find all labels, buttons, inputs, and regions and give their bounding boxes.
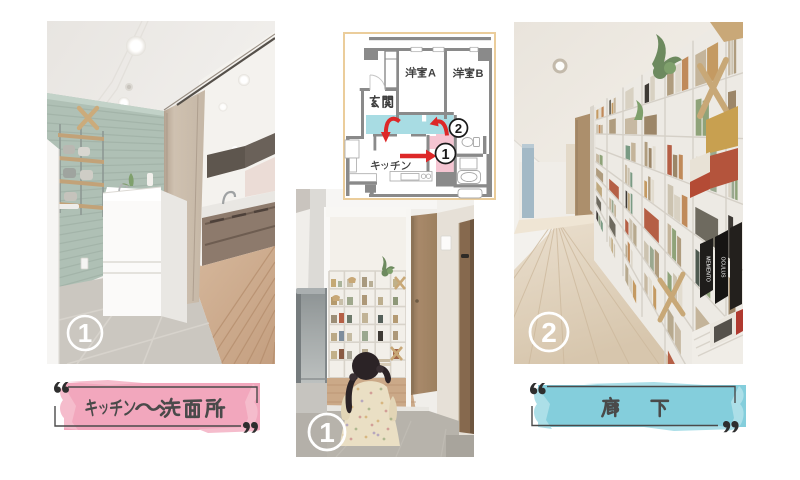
- svg-text:A: A: [428, 68, 436, 80]
- svg-text:1: 1: [441, 147, 449, 163]
- svg-text:2: 2: [455, 121, 462, 136]
- svg-text:2: 2: [541, 317, 557, 348]
- svg-text:OCULUS: OCULUS: [720, 257, 726, 279]
- svg-text:B: B: [476, 68, 484, 80]
- svg-text:1: 1: [78, 318, 92, 348]
- svg-text:MEMENTO: MEMENTO: [705, 256, 711, 282]
- svg-text:1: 1: [319, 417, 335, 448]
